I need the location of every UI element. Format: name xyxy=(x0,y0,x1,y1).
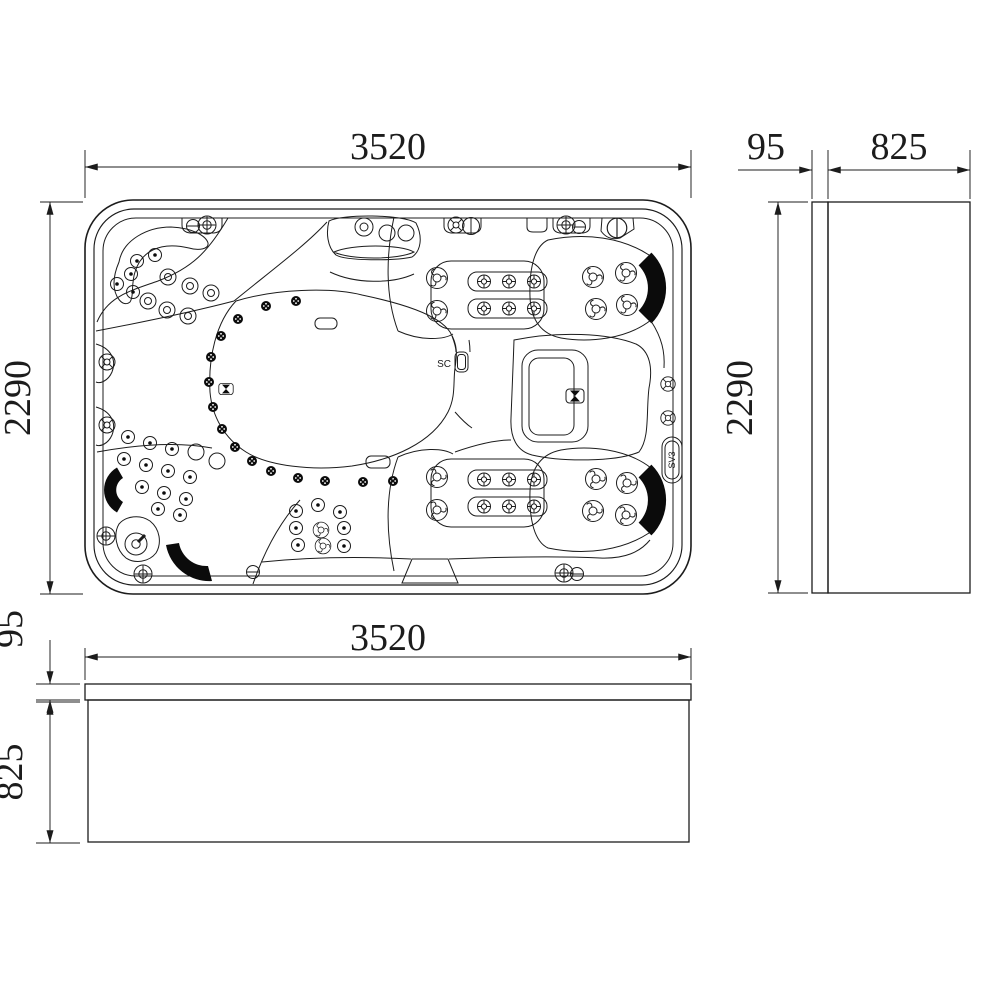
drawing-canvas: 3520 95 825 2290 2290 3520 95 825 xyxy=(0,0,1000,1000)
diverter-icon xyxy=(463,218,480,235)
jet-cluster-top-left xyxy=(111,249,220,325)
sc-label: SC xyxy=(437,359,451,370)
front-lip-dimension: 95 xyxy=(0,610,31,648)
plan-height-dimension: 2290 xyxy=(0,360,39,436)
air-valve-knob xyxy=(125,533,147,555)
seat-right xyxy=(511,334,651,460)
side-lip-dimension: 95 xyxy=(747,126,785,168)
front-height-dimension: 825 xyxy=(0,744,31,801)
step-bump xyxy=(402,559,458,583)
corner-seat-top-left xyxy=(96,218,327,331)
footwell-step xyxy=(315,318,337,329)
filter-icon xyxy=(566,389,584,403)
drain-icon xyxy=(219,383,233,394)
air-control-icon xyxy=(571,568,584,581)
sv3-valve: SV3 xyxy=(662,437,682,483)
side-height-dimension: 2290 xyxy=(719,360,761,436)
jet-fitting-icon xyxy=(97,527,115,545)
side-view xyxy=(812,202,970,593)
air-control-icon xyxy=(573,221,586,234)
side-body-panel xyxy=(828,202,970,593)
front-lip-panel xyxy=(85,684,691,700)
jet-fitting-icon xyxy=(134,565,152,583)
jet-fitting-icon xyxy=(448,217,464,233)
cup-holder xyxy=(379,225,395,241)
front-view xyxy=(85,684,691,842)
footwell xyxy=(204,290,456,487)
technical-drawing-page: 3520 95 825 2290 2290 3520 95 825 xyxy=(0,0,1000,1000)
cup-holder xyxy=(398,225,414,241)
right-wall-fittings: SV3 xyxy=(661,377,682,483)
diverter-icon xyxy=(607,218,627,238)
air-jet-cluster-center xyxy=(290,499,351,554)
side-lip-panel xyxy=(812,202,828,593)
left-wall-fittings xyxy=(96,344,115,446)
corner-seats-bottom-left xyxy=(97,431,351,585)
front-width-dimension: 3520 xyxy=(350,617,426,659)
plan-width-dimension: 3520 xyxy=(350,126,426,168)
lounger-bottom xyxy=(388,448,666,571)
air-control-icon xyxy=(247,566,260,579)
jet-fitting-icon xyxy=(198,216,216,234)
pillow-control-panel xyxy=(327,216,420,281)
suction-fitting-icon xyxy=(99,354,115,370)
headrest-crescent xyxy=(166,543,212,581)
side-depth-dimension: 825 xyxy=(871,126,928,168)
control-knob-icon xyxy=(355,218,373,236)
front-body-panel xyxy=(88,700,689,842)
suction-fitting-icon xyxy=(99,417,115,433)
sv3-label: SV3 xyxy=(667,451,677,468)
headrest-crescent xyxy=(104,468,123,513)
plan-view: SC SV3 xyxy=(85,200,691,594)
dimension-annotations: 3520 95 825 2290 2290 3520 95 825 xyxy=(0,126,970,843)
